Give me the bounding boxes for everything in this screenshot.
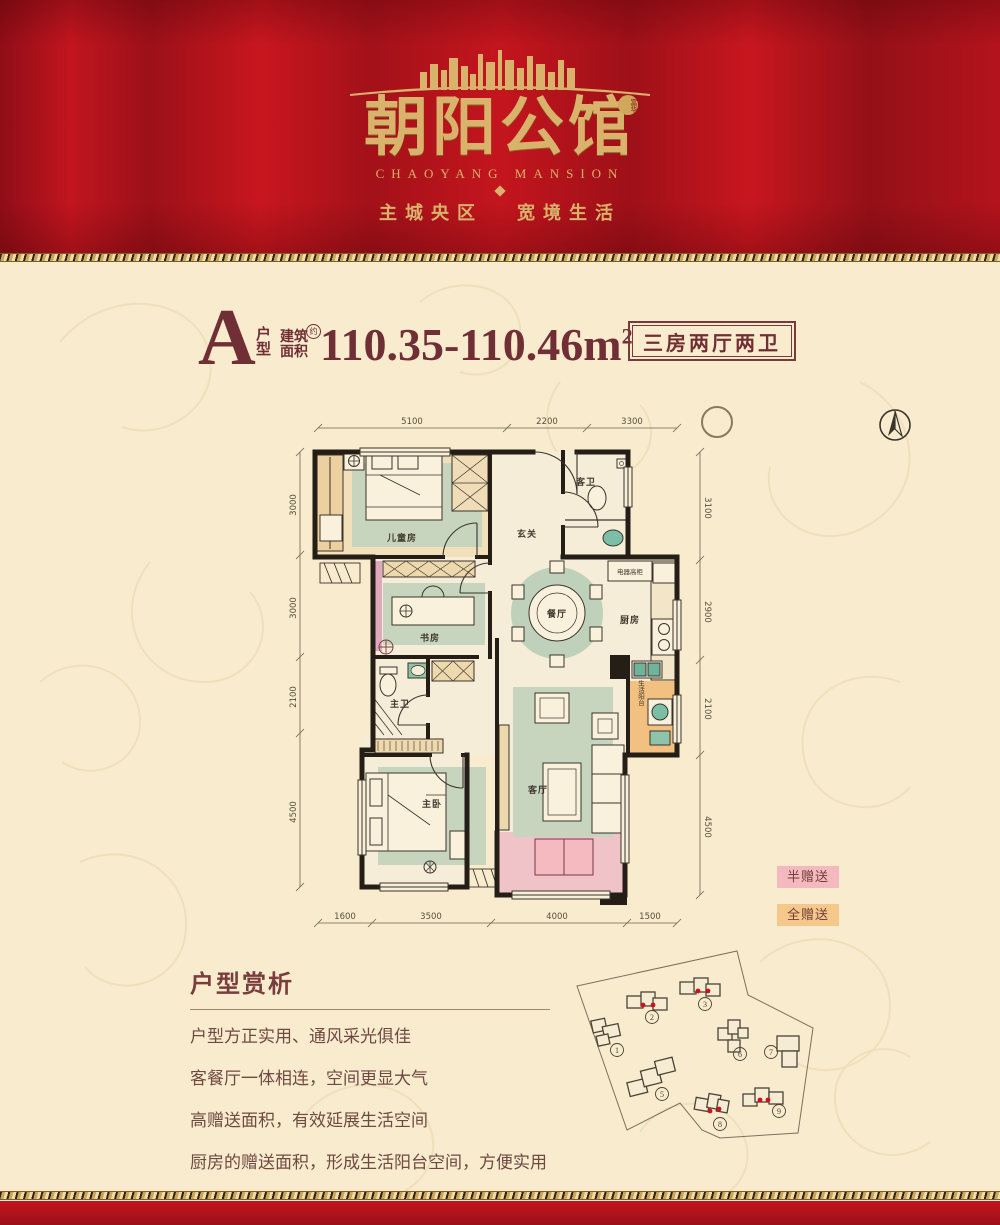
unit-type-label: 户型 bbox=[253, 326, 270, 356]
logo-subtitle: CHAOYANG MANSION bbox=[0, 166, 1000, 182]
gold-rope-border-top bbox=[0, 253, 1000, 262]
building-number-1: 1 bbox=[615, 1046, 619, 1055]
room-label-study: 书房 bbox=[420, 632, 440, 643]
approx-circle: 约 bbox=[306, 324, 321, 339]
dim-top-0: 5100 bbox=[401, 417, 423, 427]
building-number-3: 3 bbox=[703, 1000, 707, 1009]
building-number-5: 5 bbox=[660, 1090, 664, 1099]
dim-right-1: 2900 bbox=[702, 601, 712, 623]
area-label: 建筑 面积 bbox=[280, 330, 308, 360]
dim-bottom-0: 1600 bbox=[334, 912, 356, 922]
logo: 朝阳公馆 CHAOYANG MANSION 主城央区宽境生活 bbox=[0, 50, 1000, 225]
dim-right-2: 2100 bbox=[702, 698, 712, 720]
dim-bottom-2: 4000 bbox=[546, 912, 568, 922]
building-number-2: 2 bbox=[650, 1013, 654, 1022]
analysis-section: 户型赏析 户型方正实用、通风采光俱佳 客餐厅一体相连，空间更显大气 高赠送面积，… bbox=[190, 964, 570, 1199]
legend-half-gift: 半赠送 bbox=[777, 866, 839, 888]
analysis-title: 户型赏析 bbox=[190, 964, 570, 999]
room-label-kitchen: 厨房 bbox=[620, 614, 640, 625]
siteplan: 1 2 3 5 6 7 8 9 bbox=[555, 948, 845, 1163]
room-count-badge: 三房两厅两卫 bbox=[628, 321, 796, 361]
logo-title: 朝阳公馆 bbox=[0, 96, 1000, 160]
floorplan: 儿童房 书房 主卫 主卧 玄关 客卫 餐厅 厨房 客厅 电器高柜 生活阳台 51… bbox=[280, 395, 730, 940]
area-number: 110.35-110.46m bbox=[320, 319, 622, 370]
gold-rope-border-bottom bbox=[0, 1191, 1000, 1200]
skyline-icon bbox=[350, 50, 650, 96]
slogan-left: 主城央区 bbox=[379, 203, 483, 223]
dim-left-1: 3000 bbox=[289, 597, 299, 619]
dim-right-0: 3100 bbox=[702, 497, 712, 519]
room-label-children: 儿童房 bbox=[386, 532, 417, 543]
dim-left-0: 3000 bbox=[289, 494, 299, 516]
analysis-line-4: 厨房的赠送面积，形成生活阳台空间，方便实用 bbox=[190, 1142, 570, 1184]
legend-full-gift: 全赠送 bbox=[777, 904, 839, 926]
room-label-dining: 餐厅 bbox=[546, 608, 567, 619]
dim-top-1: 2200 bbox=[536, 417, 558, 427]
room-count-badge-text: 三房两厅两卫 bbox=[632, 325, 792, 357]
building-number-7: 7 bbox=[769, 1048, 773, 1057]
building-number-9: 9 bbox=[777, 1107, 781, 1116]
room-label-guest-bath: 客卫 bbox=[575, 476, 596, 487]
red-footer-band bbox=[0, 1201, 1000, 1225]
compass-icon bbox=[876, 406, 914, 444]
building-number-6: 6 bbox=[738, 1050, 742, 1059]
dim-left-3: 4500 bbox=[289, 801, 299, 823]
room-label-foyer: 玄关 bbox=[517, 528, 537, 539]
area-value: 110.35-110.46m2 bbox=[320, 318, 633, 371]
room-label-master-bath: 主卫 bbox=[390, 698, 410, 709]
building-number-8: 8 bbox=[718, 1120, 722, 1129]
analysis-line-3: 高赠送面积，有效延展生活空间 bbox=[190, 1100, 570, 1142]
dim-right-3: 4500 bbox=[702, 816, 712, 838]
diamond-divider-icon bbox=[494, 185, 505, 196]
room-label-cabinet: 电器高柜 bbox=[617, 567, 644, 576]
analysis-line-1: 户型方正实用、通风采光俱佳 bbox=[190, 1016, 570, 1058]
room-label-living: 客厅 bbox=[527, 784, 548, 795]
dim-left-2: 2100 bbox=[289, 686, 299, 708]
room-label-master-bed: 主卧 bbox=[422, 798, 442, 809]
divider bbox=[190, 1009, 550, 1010]
dim-top-2: 3300 bbox=[621, 417, 643, 427]
dim-bottom-3: 1500 bbox=[639, 912, 661, 922]
unit-type-letter: A bbox=[198, 302, 256, 374]
logo-slogan: 主城央区宽境生活 bbox=[0, 199, 1000, 225]
analysis-line-2: 客餐厅一体相连，空间更显大气 bbox=[190, 1058, 570, 1100]
dim-bottom-1: 3500 bbox=[420, 912, 442, 922]
slogan-right: 宽境生活 bbox=[517, 203, 621, 223]
logo-seal: 富华 bbox=[618, 95, 638, 115]
